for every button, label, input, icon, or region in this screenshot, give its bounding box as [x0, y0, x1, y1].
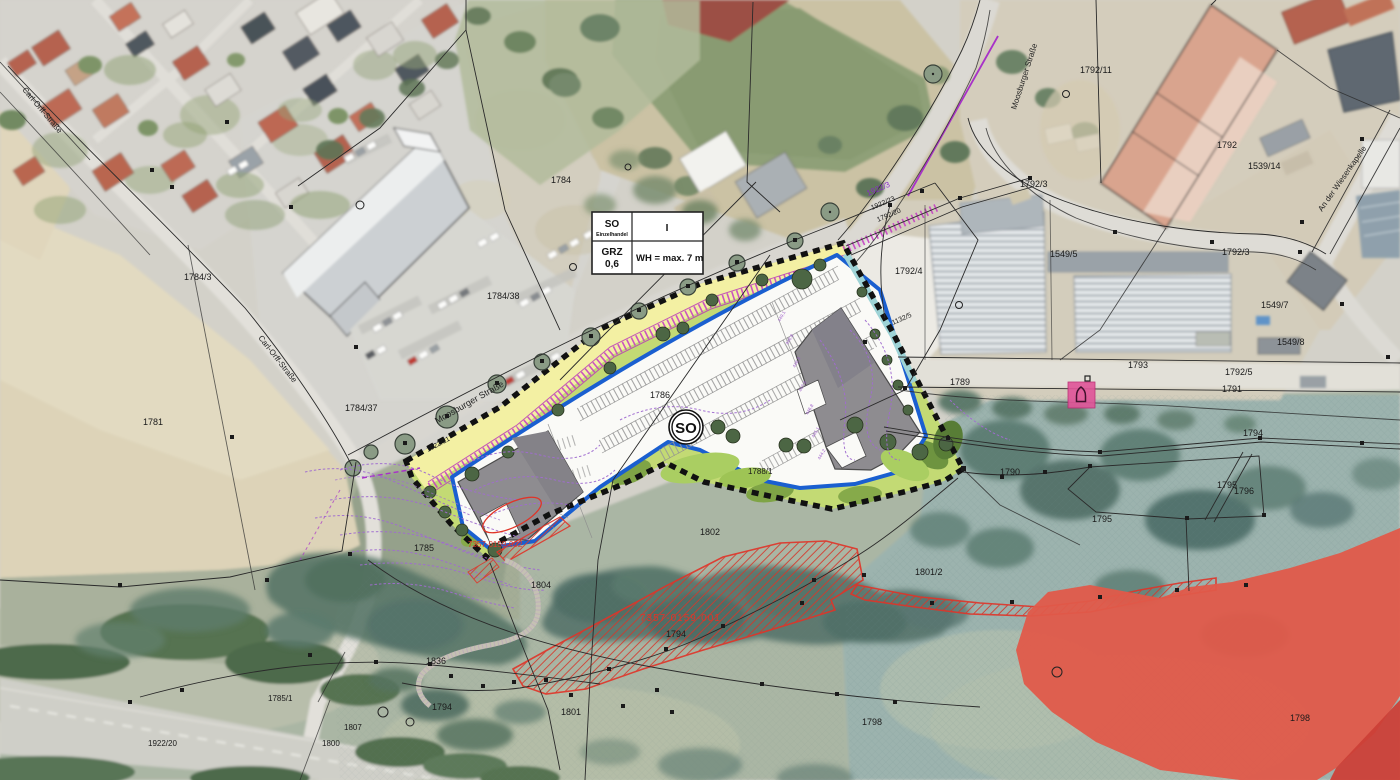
svg-text:1539/14: 1539/14 [1248, 161, 1281, 171]
svg-text:1800: 1800 [322, 739, 340, 748]
svg-text:1801: 1801 [561, 707, 581, 717]
svg-text:1792/11: 1792/11 [1080, 65, 1112, 75]
svg-text:1794: 1794 [1243, 428, 1263, 438]
svg-text:Einzelhandel: Einzelhandel [596, 232, 628, 238]
svg-text:7357-0159-002: 7357-0159-002 [468, 540, 523, 549]
svg-text:1784/37: 1784/37 [345, 403, 378, 413]
svg-text:1794: 1794 [432, 702, 452, 712]
svg-text:1793: 1793 [1128, 360, 1148, 370]
svg-text:1549/7: 1549/7 [1261, 300, 1289, 310]
svg-text:1798: 1798 [1290, 713, 1310, 723]
svg-text:1794: 1794 [666, 629, 686, 639]
svg-text:1795: 1795 [1092, 514, 1112, 524]
svg-text:I: I [666, 223, 669, 234]
svg-text:7357-0159-001: 7357-0159-001 [640, 613, 721, 624]
svg-text:1807: 1807 [344, 723, 362, 732]
svg-text:GRZ: GRZ [601, 247, 622, 258]
svg-text:1922/20: 1922/20 [148, 739, 177, 748]
svg-text:1792/3: 1792/3 [1020, 179, 1048, 189]
svg-text:1798: 1798 [862, 717, 882, 727]
svg-text:SO: SO [675, 420, 697, 437]
svg-text:1785/1: 1785/1 [268, 694, 293, 703]
svg-text:1790: 1790 [1000, 467, 1020, 477]
svg-text:1788/1: 1788/1 [748, 467, 773, 476]
svg-text:1789: 1789 [950, 377, 970, 387]
svg-text:1549/8: 1549/8 [1277, 337, 1305, 347]
svg-text:1784: 1784 [551, 175, 571, 185]
svg-text:1792/4: 1792/4 [895, 266, 923, 276]
svg-text:SO: SO [605, 219, 620, 230]
svg-text:1785: 1785 [414, 543, 434, 553]
svg-text:1786: 1786 [650, 390, 670, 400]
svg-text:1836: 1836 [426, 656, 446, 666]
svg-text:1784/38: 1784/38 [487, 291, 520, 301]
svg-text:1792: 1792 [1217, 140, 1237, 150]
svg-text:1802: 1802 [700, 527, 720, 537]
svg-text:1792/3: 1792/3 [1222, 247, 1250, 257]
svg-text:WH = max. 7 m: WH = max. 7 m [636, 253, 703, 264]
svg-text:1784/3: 1784/3 [184, 272, 212, 282]
svg-text:1792/5: 1792/5 [1225, 367, 1253, 377]
svg-text:1791: 1791 [1222, 384, 1242, 394]
svg-text:1549/5: 1549/5 [1050, 249, 1078, 259]
svg-text:1804: 1804 [531, 580, 551, 590]
svg-text:1795: 1795 [1217, 480, 1237, 490]
svg-text:1801/2: 1801/2 [915, 567, 943, 577]
svg-text:1781: 1781 [143, 417, 163, 427]
svg-text:0,6: 0,6 [605, 259, 619, 270]
